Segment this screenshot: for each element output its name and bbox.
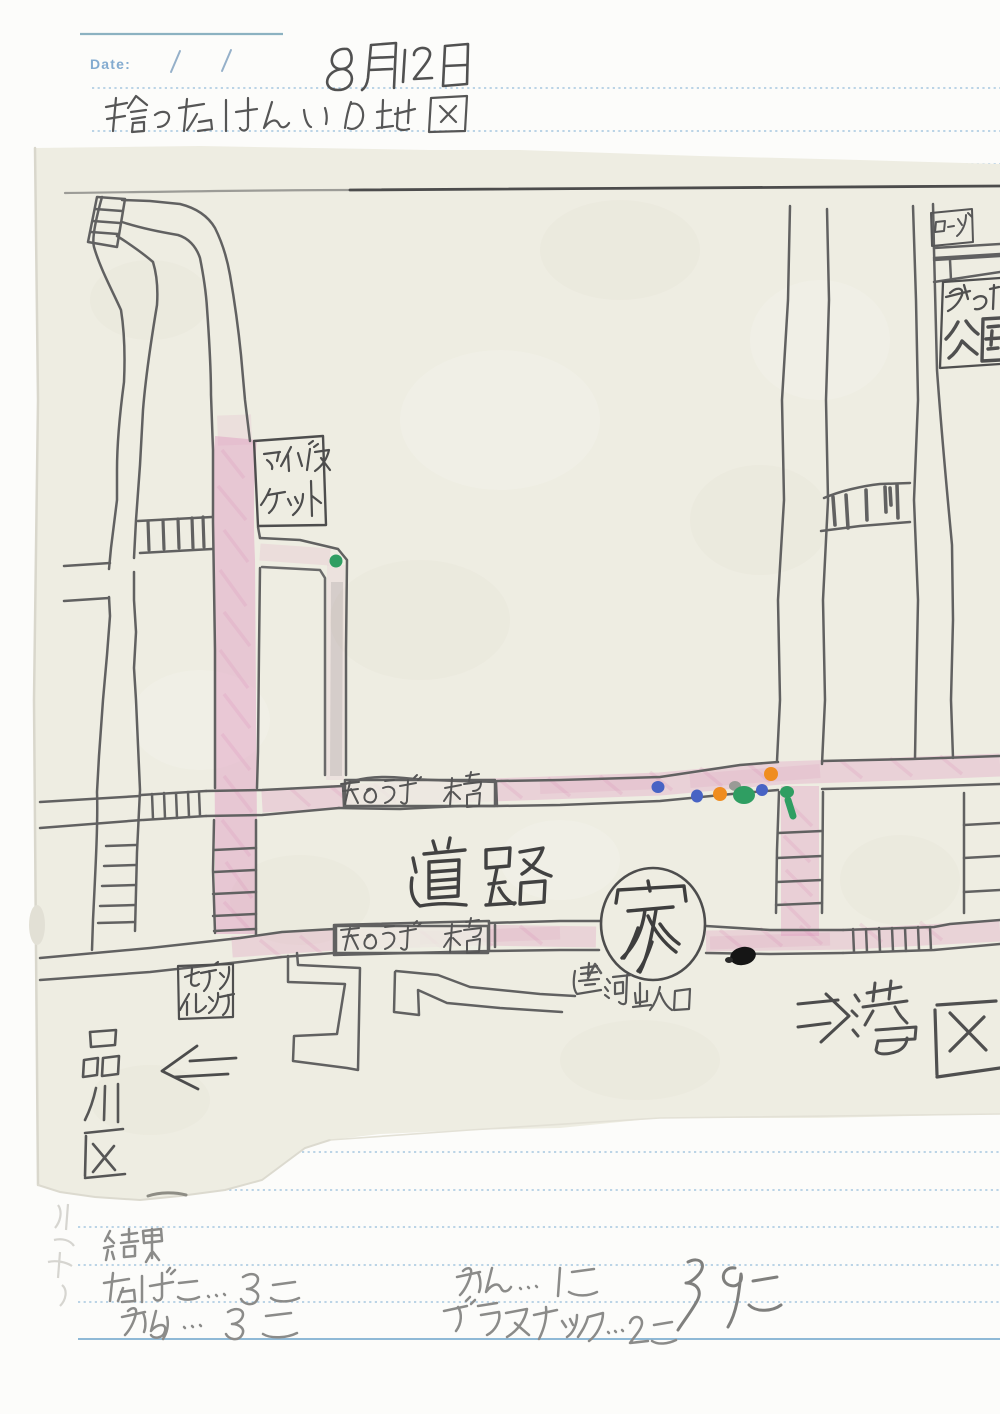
svg-text:Date:: Date: bbox=[90, 56, 131, 72]
